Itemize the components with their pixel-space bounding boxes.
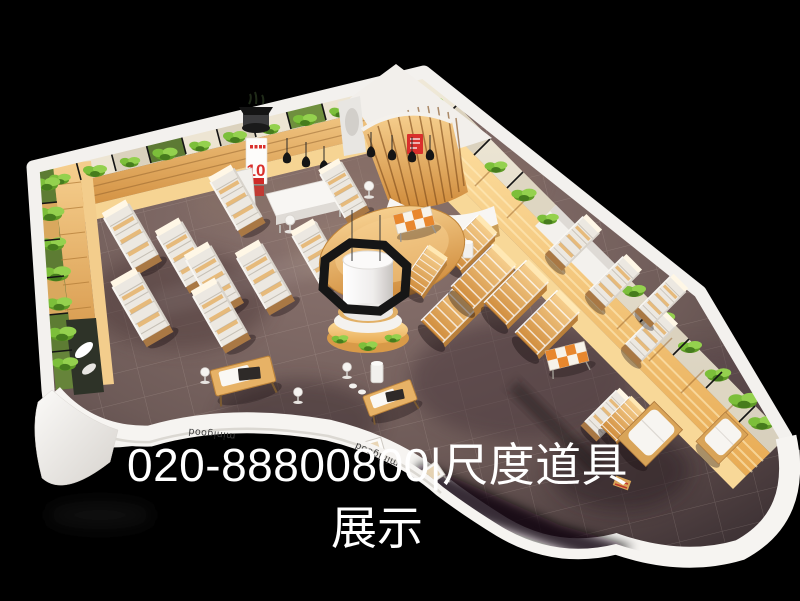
overlay-subtitle-text: 展示 <box>331 504 423 552</box>
render-canvas: 10 <box>0 0 800 601</box>
feature-wall-red-sign <box>407 134 423 154</box>
overlay-phone-text: 020-88800800|尺度道具 <box>127 441 628 489</box>
